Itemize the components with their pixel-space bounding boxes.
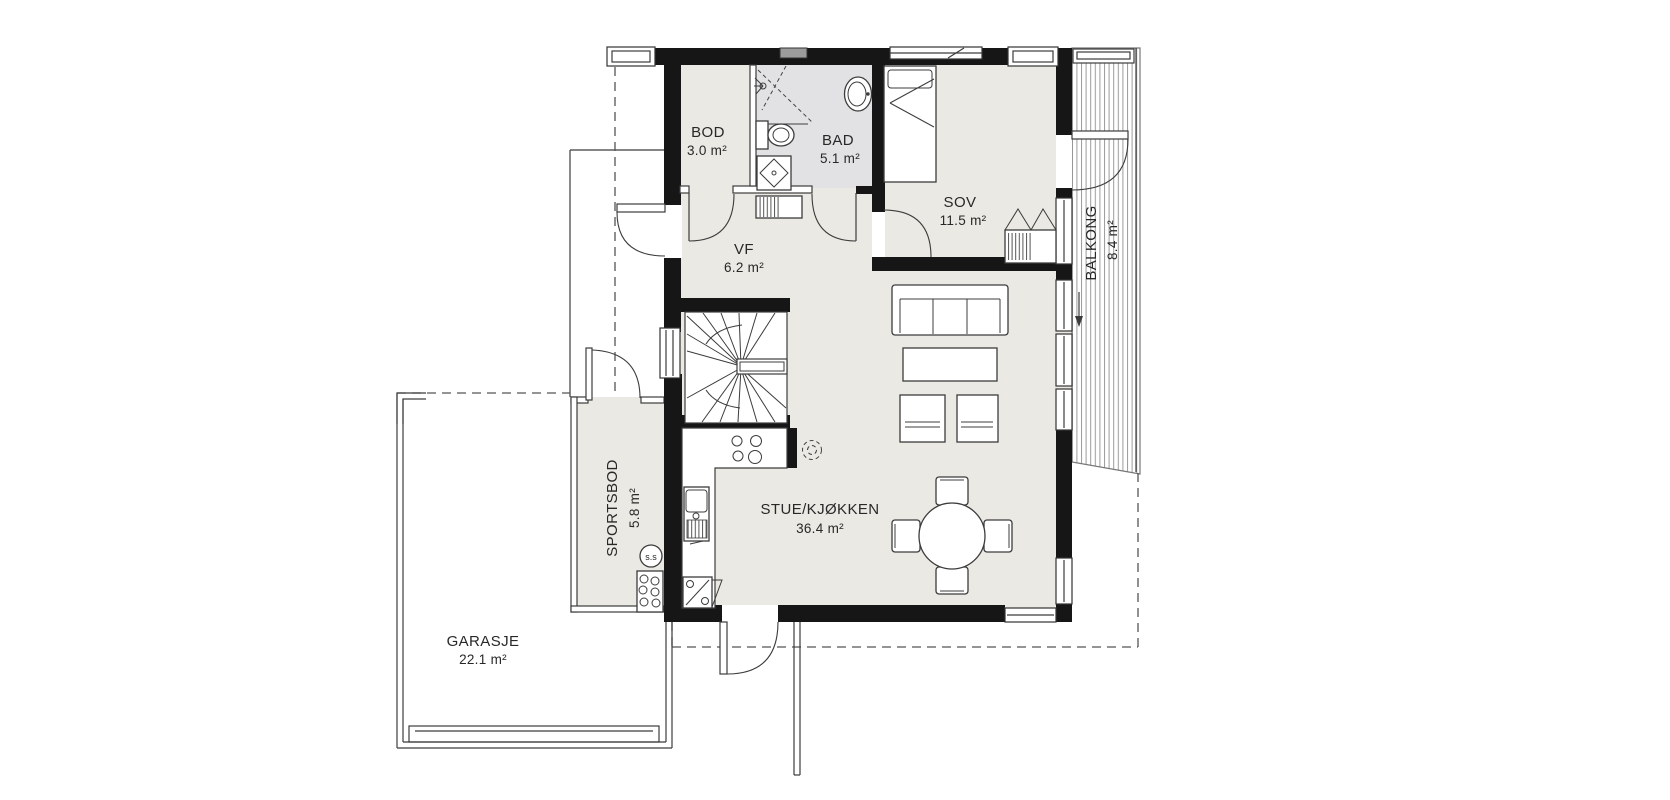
room-stue-name: STUE/KJØKKEN <box>761 501 880 518</box>
sofa <box>892 285 1008 335</box>
window-living-east-4 <box>1056 558 1072 604</box>
wall-kitchen-stub <box>787 428 797 468</box>
room-bod-name: BOD <box>691 124 725 141</box>
armchair-left <box>900 395 945 442</box>
room-garasje-area: 22.1 m² <box>459 652 507 667</box>
wall-east-4 <box>1056 430 1072 558</box>
dining-table <box>919 503 985 569</box>
utility-unit-icon <box>637 571 663 612</box>
wall-stair-north <box>678 298 790 312</box>
room-garasje-name: GARASJE <box>447 633 520 650</box>
wall-bad-sov <box>872 65 885 212</box>
sportsbod-door <box>586 348 640 400</box>
coffee-table <box>903 348 997 381</box>
balcony-railing-top <box>1073 49 1134 63</box>
wall-south-2 <box>778 605 1005 622</box>
floor-plan-page: s.s <box>0 0 1670 800</box>
room-vf-name: VF <box>734 241 754 258</box>
bed <box>884 66 936 182</box>
garage-corner-bracket <box>397 393 426 424</box>
wall-east-3 <box>1056 262 1072 280</box>
wall-east-5 <box>1056 604 1072 622</box>
room-balkong-area: 8.4 m² <box>1105 220 1120 260</box>
floor-plan-canvas: s.s <box>0 0 1670 800</box>
garage-door <box>409 726 659 742</box>
water-heater-icon: s.s <box>640 545 662 567</box>
room-garasje: GARASJE 22.1 m² <box>447 633 520 667</box>
window-stairwell-west <box>660 328 680 378</box>
porch-outline <box>570 67 664 397</box>
window-living-east-3 <box>1056 389 1072 430</box>
window-sov-north <box>890 47 982 59</box>
bath-vent-window <box>780 48 807 58</box>
entrance-door-leaf <box>617 204 665 212</box>
room-sportsbod-area: 5.8 m² <box>627 488 642 528</box>
heater-unit-icon <box>757 156 791 190</box>
wall-west-mid <box>664 256 681 332</box>
stairs <box>685 312 787 423</box>
wall-west-lower <box>664 374 682 615</box>
garage-corner-bracket-inner <box>403 399 426 424</box>
room-vf-area: 6.2 m² <box>724 260 764 275</box>
room-bad-name: BAD <box>822 132 854 149</box>
window-sov-east <box>1056 198 1072 264</box>
coat-rack-icon <box>756 196 802 218</box>
dining-chair-top <box>936 477 968 505</box>
room-sov-area: 11.5 m² <box>940 213 987 228</box>
room-bod-area: 3.0 m² <box>687 143 727 158</box>
sportsbod-fixtures: s.s <box>637 545 663 612</box>
armchair-right <box>957 395 998 442</box>
room-sportsbod-name: SPORTSBOD <box>604 459 621 557</box>
corner-box-northwest <box>607 47 655 66</box>
wall-west-upper <box>664 48 681 207</box>
window-living-east-2 <box>1056 334 1072 386</box>
washbasin-icon <box>845 77 872 111</box>
water-heater-label: s.s <box>645 552 657 562</box>
dining-chair-left <box>892 520 920 552</box>
corner-box-northeast <box>1008 47 1058 66</box>
window-living-south <box>1005 608 1056 622</box>
room-bad-area: 5.1 m² <box>820 151 860 166</box>
room-stue-area: 36.4 m² <box>796 521 844 536</box>
room-balkong-name: BALKONG <box>1083 205 1100 280</box>
terrace-door-leaf <box>720 622 727 674</box>
kitchen-sink-icon <box>684 487 709 544</box>
entrance-door <box>617 204 682 258</box>
balcony-door-leaf <box>1072 131 1128 139</box>
dining-chair-bottom <box>936 567 968 594</box>
terrace-door <box>720 605 778 674</box>
sportsbod-door-leaf <box>586 348 592 400</box>
window-living-east-1 <box>1056 280 1072 331</box>
room-sov-name: SOV <box>944 194 977 211</box>
stair-handrail <box>737 359 787 374</box>
terrace-divider-wall <box>794 622 800 775</box>
wall-bod-bad <box>750 65 756 186</box>
toilet-icon <box>756 121 794 149</box>
dining-chair-right <box>984 520 1012 552</box>
